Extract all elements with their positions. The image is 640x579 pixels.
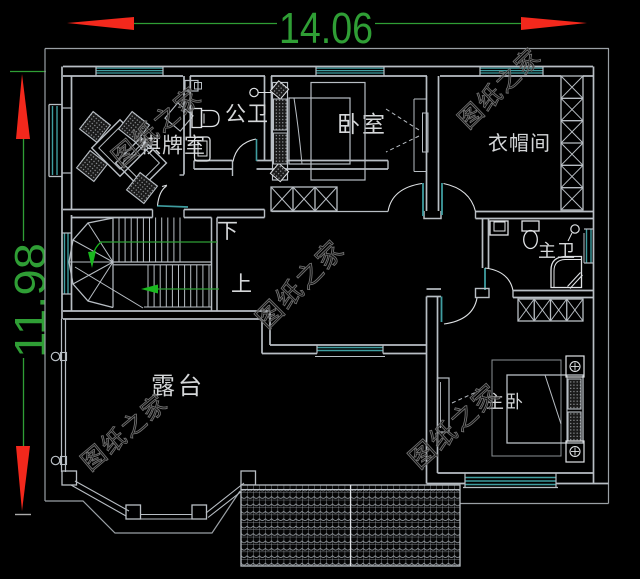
svg-text:14.06: 14.06: [279, 4, 373, 53]
svg-text:11.98: 11.98: [6, 243, 55, 358]
svg-text:下: 下: [217, 220, 239, 243]
svg-text:公卫: 公卫: [225, 103, 269, 126]
svg-text:上: 上: [231, 273, 253, 296]
svg-text:卧室: 卧室: [337, 111, 387, 137]
svg-text:衣帽间: 衣帽间: [488, 132, 551, 155]
